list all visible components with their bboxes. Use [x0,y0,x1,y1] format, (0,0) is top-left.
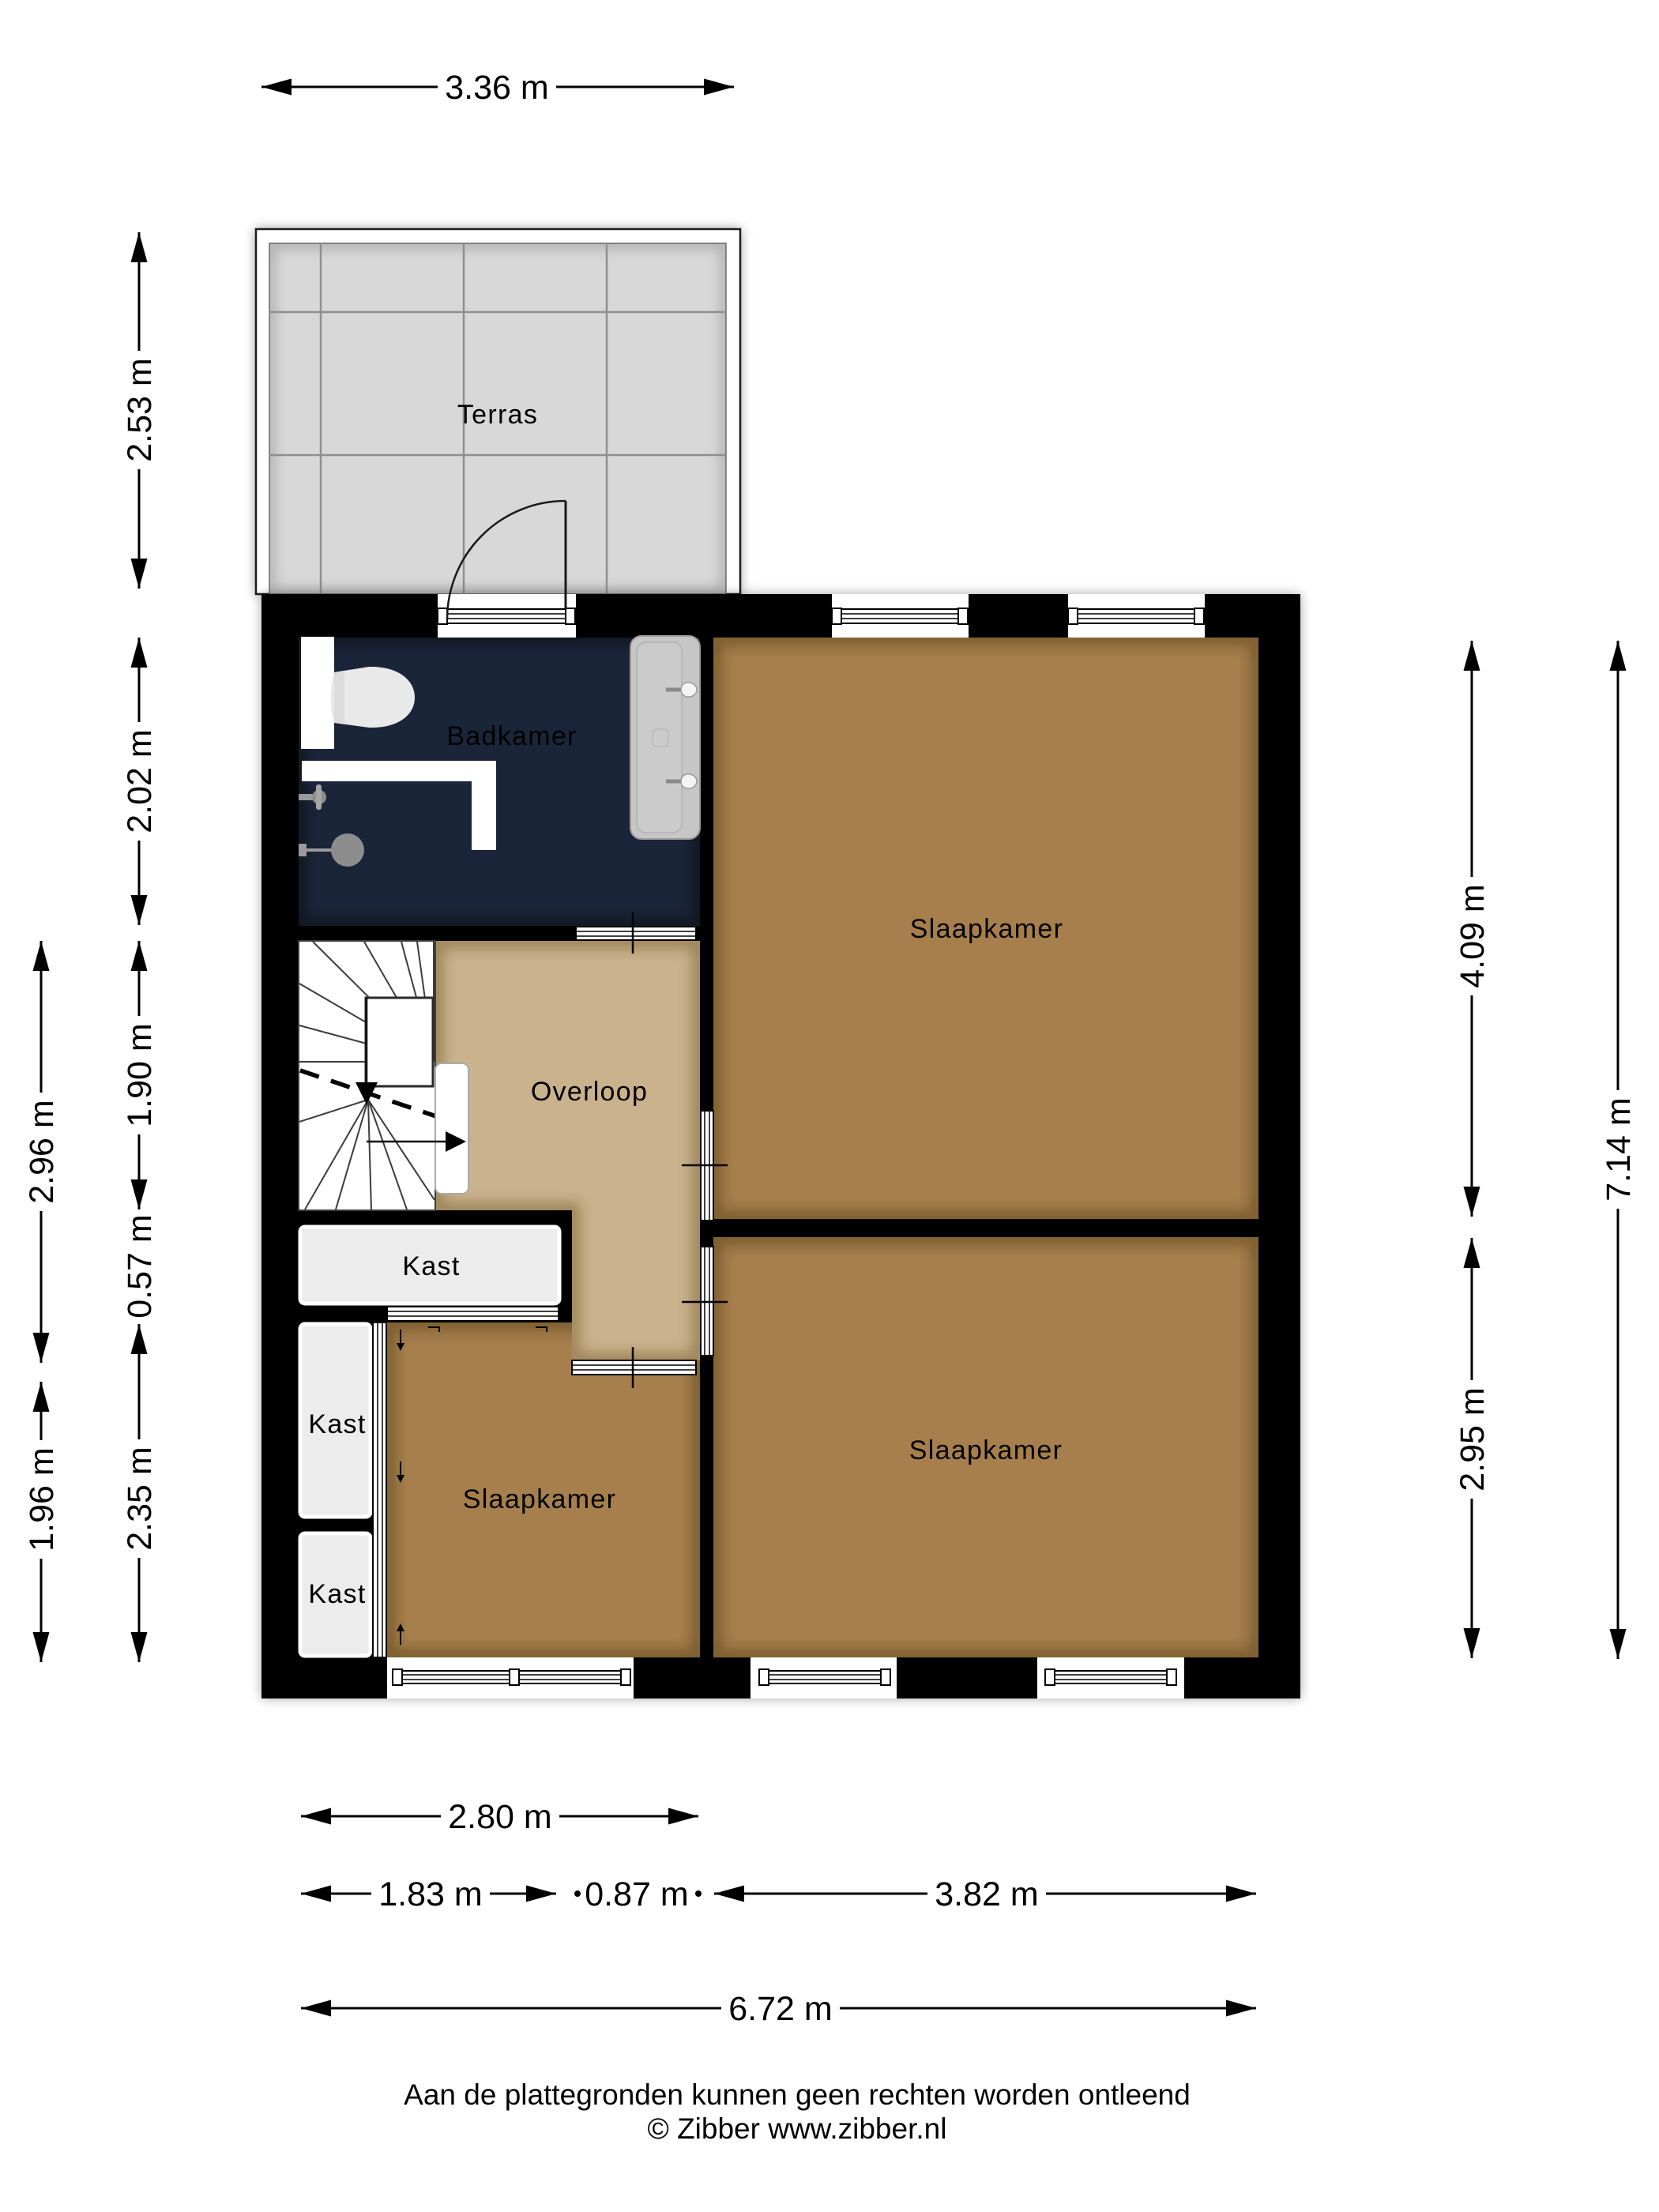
svg-text:Slaapkamer: Slaapkamer [910,914,1063,944]
svg-text:1.83 m: 1.83 m [378,1875,482,1913]
svg-text:2.35 m: 2.35 m [121,1446,159,1550]
svg-text:Kast: Kast [308,1579,366,1609]
svg-text:Kast: Kast [402,1251,460,1281]
svg-text:0.57 m: 0.57 m [121,1214,159,1318]
svg-text:4.09 m: 4.09 m [1454,884,1492,987]
svg-text:6.72 m: 6.72 m [728,1990,832,2028]
svg-text:2.80 m: 2.80 m [448,1798,551,1836]
svg-text:Slaapkamer: Slaapkamer [909,1435,1063,1465]
svg-text:2.53 m: 2.53 m [121,358,159,461]
svg-text:Aan de plattegronden kunnen ge: Aan de plattegronden kunnen geen rechten… [404,2078,1191,2111]
svg-text:7.14 m: 7.14 m [1600,1097,1638,1201]
svg-text:Terras: Terras [457,400,538,430]
svg-text:0.87 m: 0.87 m [585,1875,688,1913]
svg-text:2.96 m: 2.96 m [23,1100,61,1203]
svg-text:2.02 m: 2.02 m [121,729,159,833]
svg-text:3.36 m: 3.36 m [445,69,548,107]
svg-text:© Zibber www.zibber.nl: © Zibber www.zibber.nl [648,2112,947,2145]
svg-text:Badkamer: Badkamer [446,721,577,751]
svg-text:Slaapkamer: Slaapkamer [463,1484,616,1514]
svg-text:Kast: Kast [308,1409,366,1439]
svg-text:1.96 m: 1.96 m [23,1447,61,1551]
svg-text:Overloop: Overloop [531,1077,648,1107]
svg-text:3.82 m: 3.82 m [935,1875,1038,1913]
svg-text:1.90 m: 1.90 m [121,1023,159,1127]
svg-text:2.95 m: 2.95 m [1454,1387,1492,1491]
